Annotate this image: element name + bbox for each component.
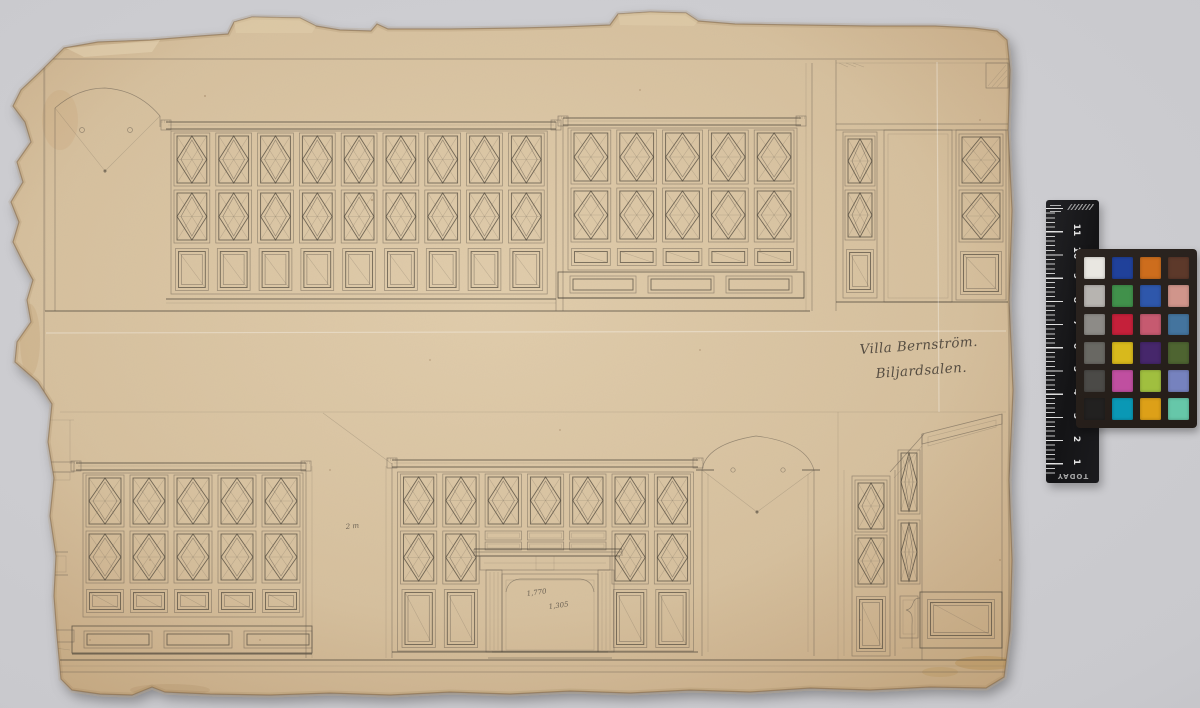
ruler-number-11: 11 xyxy=(1071,223,1081,237)
color-patch-light-skin xyxy=(1168,285,1189,307)
color-patch-purple xyxy=(1140,342,1161,364)
color-patch-black xyxy=(1084,398,1105,420)
paper-tear-flap xyxy=(618,12,698,26)
color-patch-orange xyxy=(1140,257,1161,279)
color-patch-moderate-red xyxy=(1140,314,1161,336)
ruler-number-1: 1 xyxy=(1071,455,1081,469)
color-checker-chart xyxy=(1076,249,1197,428)
ruler-number-2: 2 xyxy=(1071,432,1081,446)
ruler-logo-script xyxy=(1067,204,1095,210)
color-patch-neutral-3.5 xyxy=(1084,370,1105,392)
ruler-mm-ticks xyxy=(1046,208,1055,475)
paper-stain xyxy=(42,90,78,150)
color-patch-cyan xyxy=(1112,398,1133,420)
sheet-and-drawing: Villa Bernström. Biljardsalen. 1,770 1,3… xyxy=(0,0,1200,708)
color-patch-bluish-green xyxy=(1168,398,1189,420)
color-patch-neutral-5 xyxy=(1084,342,1105,364)
paper-grain-texture xyxy=(0,0,1200,708)
color-patch-blue-flower xyxy=(1168,370,1189,392)
color-patch-yellow xyxy=(1112,342,1133,364)
color-patch-orange-yellow xyxy=(1140,398,1161,420)
archive-photograph: Villa Bernström. Biljardsalen. 1,770 1,3… xyxy=(0,0,1200,708)
ruler-brand-marking xyxy=(1050,205,1061,213)
color-patch-purplish-blue xyxy=(1140,285,1161,307)
color-patch-neutral-6.5 xyxy=(1084,314,1105,336)
color-patch-blue xyxy=(1112,257,1133,279)
color-patch-green xyxy=(1112,285,1133,307)
paper-stain xyxy=(20,304,40,376)
color-patch-dark-skin xyxy=(1168,257,1189,279)
wall-height-note: 2 m xyxy=(344,522,359,531)
color-patch-magenta xyxy=(1112,370,1133,392)
color-patch-red xyxy=(1112,314,1133,336)
color-patch-white xyxy=(1084,257,1105,279)
color-patch-yellow-green xyxy=(1140,370,1161,392)
color-patch-grid xyxy=(1084,257,1189,420)
color-patch-blue-sky xyxy=(1168,314,1189,336)
ruler-bottom-label: TODAY xyxy=(1046,472,1099,480)
color-patch-neutral-8 xyxy=(1084,285,1105,307)
color-patch-foliage xyxy=(1168,342,1189,364)
